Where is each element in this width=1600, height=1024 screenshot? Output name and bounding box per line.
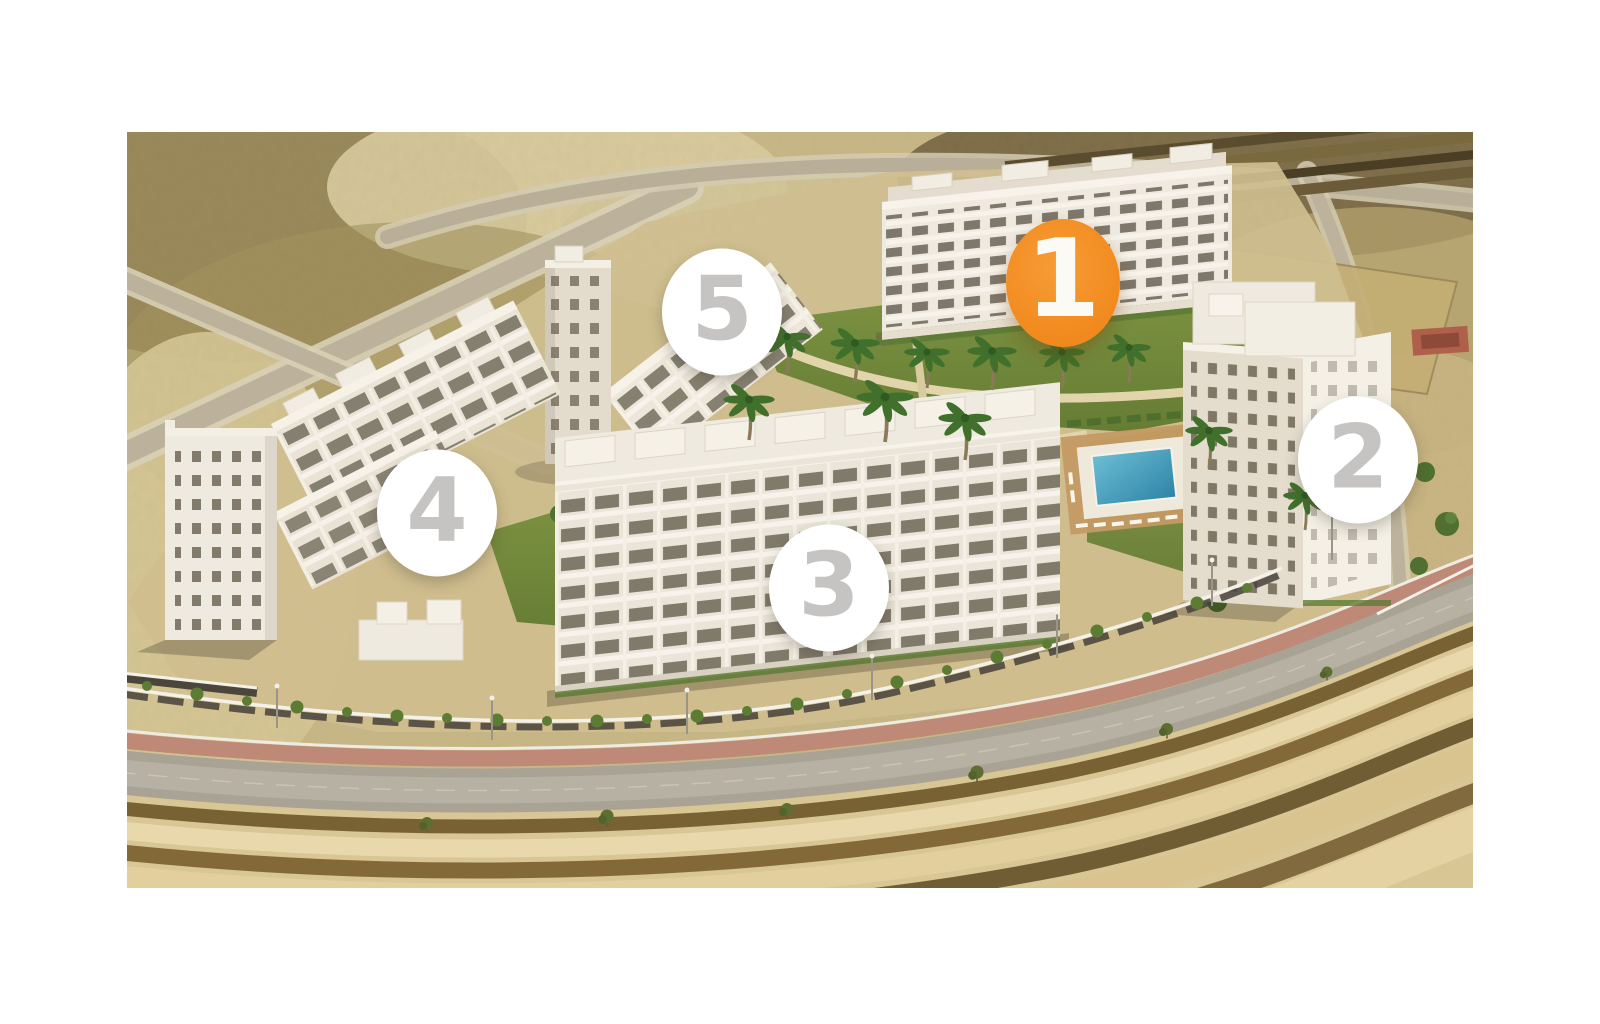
phase-marker-4-label: 4: [406, 466, 467, 554]
phase-marker-5-label: 5: [691, 265, 752, 353]
phase-marker-2[interactable]: 2: [1298, 397, 1418, 524]
phase-marker-5[interactable]: 5: [662, 249, 782, 376]
phase-marker-3-label: 3: [798, 541, 859, 629]
phase-marker-2-label: 2: [1327, 413, 1388, 501]
siteplan-render-image: 1 2 3 4 5: [127, 132, 1473, 888]
phase-marker-1-label: 1: [1025, 226, 1100, 334]
phase-marker-3[interactable]: 3: [769, 525, 889, 652]
screenshot-canvas: 1 2 3 4 5: [0, 0, 1600, 1024]
red-roof-building: [1411, 326, 1469, 356]
siteplan-scene: [127, 132, 1473, 888]
phase-marker-1[interactable]: 1: [1006, 219, 1120, 347]
phase-marker-4[interactable]: 4: [377, 450, 497, 577]
